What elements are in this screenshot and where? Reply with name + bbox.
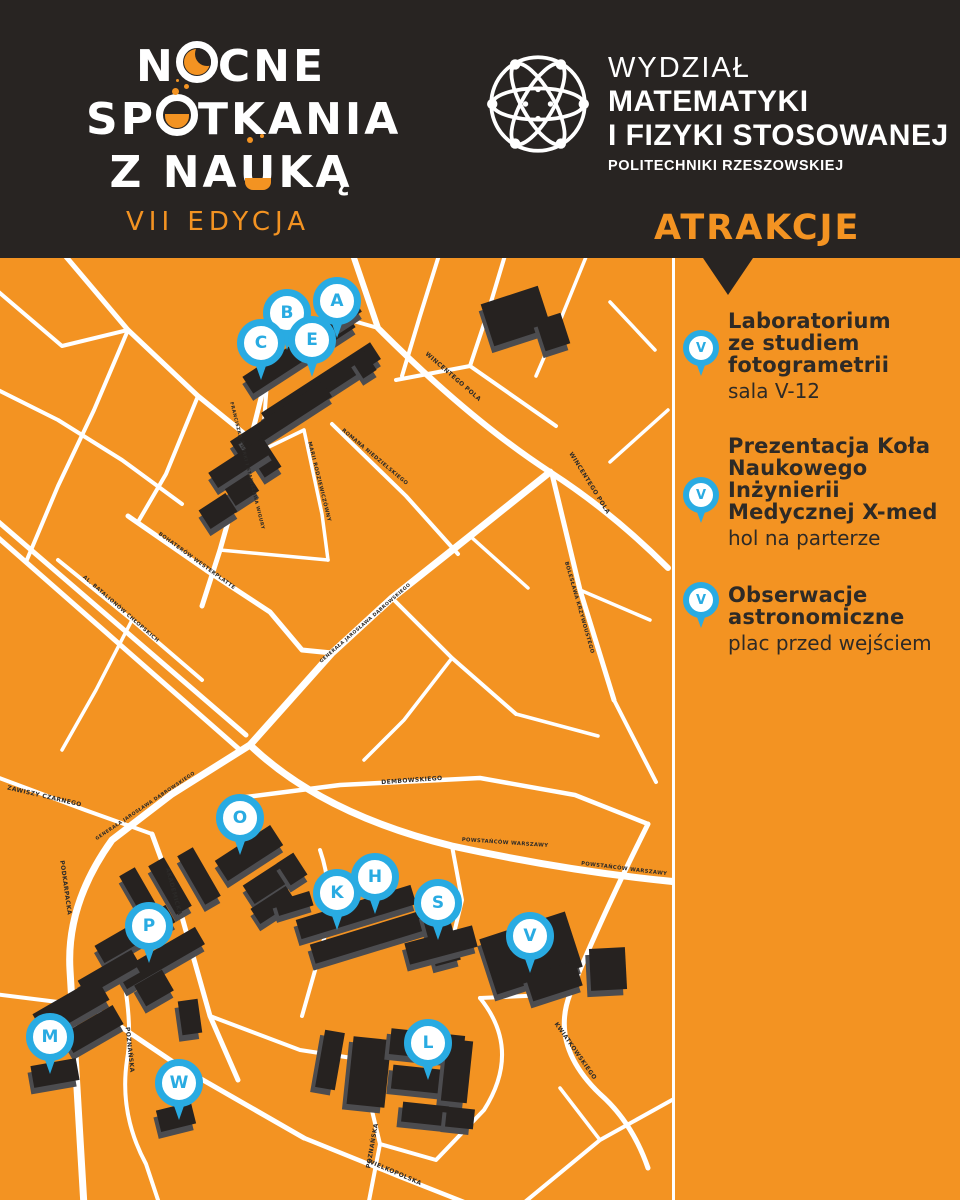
pin-tail (422, 1065, 434, 1080)
faculty-line-4: POLITECHNIKI RZESZOWSKIEJ (608, 158, 949, 174)
pin-tail (331, 915, 343, 930)
street-label: DEMBOWSKIEGO (381, 775, 443, 786)
map-marker-m[interactable]: M (26, 1013, 74, 1074)
moon-icon: O (176, 41, 218, 83)
street-label: AL. BATALIONÓW CHŁOPSKICH (81, 574, 160, 644)
flask-icon: O (156, 94, 198, 136)
pin-tail (143, 948, 155, 963)
header: NOCNE SPOTKANIA Z NAUKĄ VII EDYCJA WYDZI… (0, 0, 960, 258)
map-marker-c[interactable]: C (237, 319, 285, 380)
faculty-line-1: WYDZIAŁ (608, 52, 949, 85)
attraction-item-1: V Laboratorium ze studiem fotogrametrii … (683, 310, 954, 403)
pin-tail (369, 899, 381, 914)
street-label: GENERAŁA JAROSŁAWA DĄBROWSKIEGO (319, 582, 413, 664)
event-logo: NOCNE SPOTKANIA Z NAUKĄ VII EDYCJA (86, 40, 376, 237)
map-marker-l[interactable]: L (404, 1019, 452, 1080)
pin-tail (44, 1059, 56, 1074)
pin-tail (524, 958, 536, 973)
attraction-location: hol na parterze (728, 526, 954, 550)
street-label: ZAWISZY CZARNEGO (6, 785, 82, 809)
location-pin-icon: V (683, 330, 719, 376)
location-pin-icon: V (683, 477, 719, 523)
pin-tail (173, 1105, 185, 1120)
map-marker-s[interactable]: S (414, 879, 462, 940)
map-marker-v[interactable]: V (506, 912, 554, 973)
pin-tail (234, 840, 246, 855)
section-title: ATRAKCJE (654, 208, 860, 248)
street-label: KWIATKOWSKIEGO (553, 1021, 598, 1081)
faculty-line-3: I FIZYKI STOSOWANEJ (608, 119, 949, 153)
attractions-sidebar: V Laboratorium ze studiem fotogrametrii … (672, 258, 960, 1200)
attraction-location: sala V-12 (728, 379, 891, 403)
attraction-title: Obserwacje astronomiczne (728, 584, 932, 628)
map-marker-w[interactable]: W (155, 1059, 203, 1120)
atom-icon (486, 48, 590, 160)
map-marker-e[interactable]: E (288, 316, 336, 377)
map-marker-o[interactable]: O (216, 794, 264, 855)
logo-line-1: NOCNE (86, 40, 376, 93)
street-label: POWSTAŃCÓW WARSZAWY (462, 835, 549, 849)
attraction-location: plac przed wejściem (728, 631, 932, 655)
pin-tail (432, 925, 444, 940)
faculty-line-2: MATEMATYKI (608, 85, 949, 119)
flask-u-icon: U (240, 146, 279, 199)
street-label: PODKARPACKA (58, 860, 73, 915)
attraction-title: Prezentacja Koła Naukowego Inżynierii Me… (728, 435, 954, 523)
map-marker-p[interactable]: P (125, 902, 173, 963)
campus-map: WINCENTEGO POLA WINCENTEGO POLA FRANCISZ… (0, 258, 672, 1200)
street-label: BOLESŁAWA KRZYWOUSTEGO (563, 561, 595, 655)
map-canvas: WINCENTEGO POLA WINCENTEGO POLA FRANCISZ… (0, 258, 672, 1200)
street-label: ROMANA NIEDZIELSKIEGO (340, 428, 409, 487)
attraction-title: Laboratorium ze studiem fotogrametrii (728, 310, 891, 376)
street-label: WINCENTEGO POLA (567, 451, 611, 515)
faculty-logo: WYDZIAŁ MATEMATYKI I FIZYKI STOSOWANEJ P… (486, 48, 949, 174)
pointer-triangle (703, 258, 753, 295)
logo-line-2: SPOTKANIA (86, 93, 376, 146)
attraction-item-2: V Prezentacja Koła Naukowego Inżynierii … (683, 435, 954, 550)
attraction-item-3: V Obserwacje astronomiczne plac przed we… (683, 582, 954, 655)
pin-tail (255, 365, 267, 380)
edition-label: VII EDYCJA (126, 207, 376, 237)
attractions-list: V Laboratorium ze studiem fotogrametrii … (675, 258, 960, 655)
pin-tail (306, 362, 318, 377)
map-marker-h[interactable]: H (351, 853, 399, 914)
location-pin-icon: V (683, 582, 719, 628)
logo-line-3: Z NAUKĄ (86, 146, 376, 199)
